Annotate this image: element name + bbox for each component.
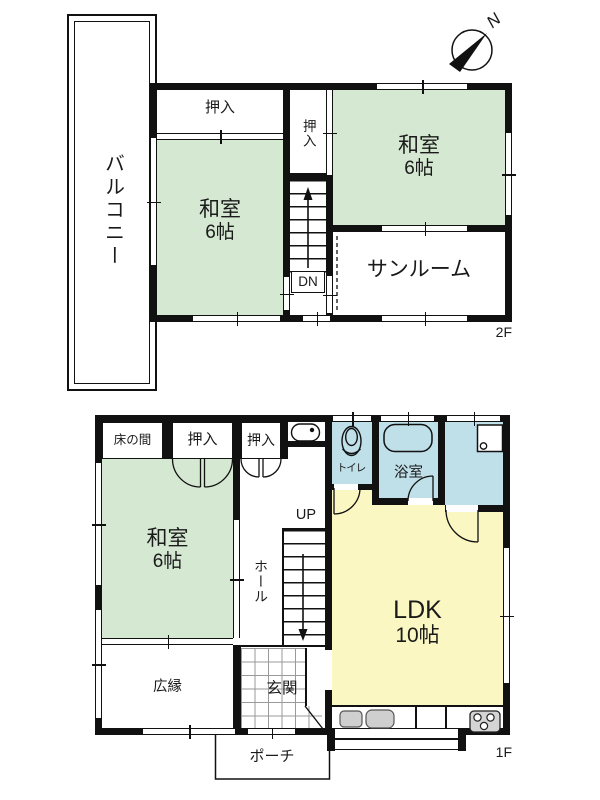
window	[95, 610, 102, 718]
room-size: 6帖	[153, 551, 183, 573]
sunroom-label: サンルーム	[333, 256, 505, 284]
1f-stairs	[284, 530, 325, 645]
bath-door-gap	[408, 498, 433, 505]
hiroen-label: 広縁	[102, 677, 233, 697]
room-name: 和室	[398, 134, 440, 158]
room-name: 和室	[199, 198, 241, 222]
kitchen-counter	[332, 705, 503, 728]
hall-label: ホール	[250, 548, 272, 614]
toilet-door-gap	[334, 484, 358, 490]
tokonoma-label: 床の間	[102, 430, 163, 450]
room-size: 6帖	[404, 158, 434, 180]
entrance-door	[248, 728, 295, 735]
window-post	[327, 728, 335, 751]
sliding-door	[157, 133, 283, 140]
window	[505, 133, 512, 215]
2f-floor-label: 2F	[478, 324, 512, 340]
porch-label: ポーチ	[240, 747, 304, 767]
sliding-door	[283, 277, 290, 310]
washroom-door-gap	[446, 505, 478, 512]
window	[503, 548, 510, 683]
2f-closet-top-label: 押入	[157, 98, 283, 118]
washbasin-icon	[292, 424, 320, 441]
wall	[325, 422, 332, 650]
wall	[163, 422, 172, 459]
window	[95, 463, 102, 585]
window	[447, 415, 500, 422]
sliding-door	[326, 90, 333, 175]
1f-bath-room	[379, 422, 438, 498]
window	[377, 83, 467, 90]
closet1-label: 押入	[172, 430, 233, 450]
window	[382, 315, 467, 322]
balcony-label: バルコニー	[98, 128, 126, 293]
toilet-label: トイレ	[330, 461, 372, 476]
1f-washroom-room	[445, 422, 503, 505]
wall	[233, 458, 240, 520]
bath-label: 浴室	[379, 464, 438, 482]
wall	[438, 415, 445, 505]
sliding-door	[233, 520, 240, 638]
room-name: 和室	[147, 527, 189, 551]
window	[333, 415, 371, 422]
window	[381, 415, 434, 422]
1f-stairs-up-label: UP	[288, 506, 324, 525]
ldk-label: LDK 10帖	[352, 591, 483, 653]
compass-icon	[449, 30, 492, 72]
wall	[372, 415, 379, 505]
room-size: 6帖	[205, 222, 235, 244]
kitchen-counter-edge	[332, 705, 503, 707]
2f-stairs	[290, 180, 326, 273]
genkan-step-line	[241, 645, 325, 647]
kitchen-counter-divider	[445, 705, 447, 728]
1f-washitsu-label: 和室 6帖	[102, 518, 233, 582]
wall	[325, 690, 332, 728]
window	[303, 315, 330, 322]
closet2-doors	[241, 459, 281, 477]
room-name: LDK	[393, 596, 442, 625]
room-size: 10帖	[395, 624, 439, 648]
sliding-door	[102, 638, 233, 645]
window	[326, 276, 333, 313]
kitchen-counter-divider	[415, 705, 417, 728]
wall	[233, 422, 241, 459]
wall	[233, 645, 241, 728]
floor-plan: バルコニー 押入 押入 和室 6帖 和室 6帖 サンルーム DN 2F N 床の…	[0, 0, 600, 800]
ldk-patio-window-line	[335, 738, 458, 740]
window	[193, 315, 280, 322]
2f-closet-side-label: 押入	[294, 102, 322, 164]
genkan-label: 玄関	[243, 679, 321, 699]
2f-washitsu-right-label: 和室 6帖	[333, 126, 505, 188]
wall	[287, 441, 325, 447]
1f-floor-label: 1F	[478, 744, 512, 760]
2f-stairs-dn-label: DN	[291, 271, 325, 293]
wall	[290, 173, 326, 180]
window-post	[458, 728, 466, 751]
closet2-label: 押入	[241, 430, 281, 450]
window	[143, 728, 235, 735]
compass-north-label: N	[480, 7, 508, 35]
balcony-door	[150, 138, 157, 265]
2f-washitsu-left-label: 和室 6帖	[157, 190, 283, 252]
sliding-door	[382, 225, 467, 232]
